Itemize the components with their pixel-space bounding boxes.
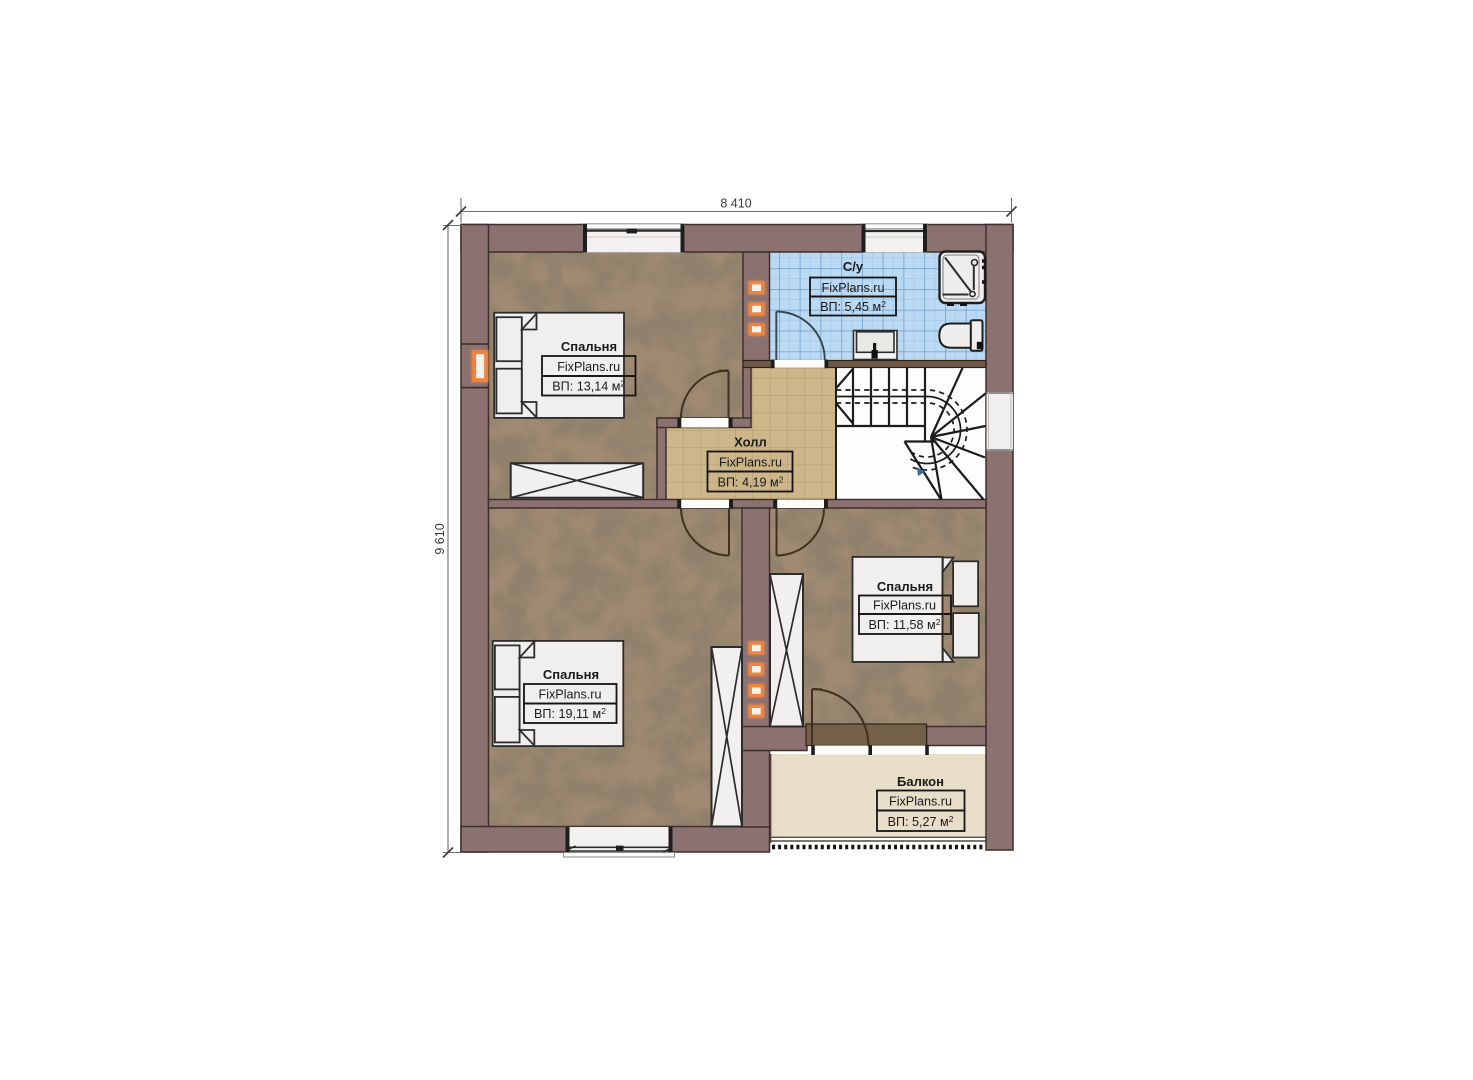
svg-text:ВП: 5,45 м2: ВП: 5,45 м2 <box>820 299 886 314</box>
svg-text:FixPlans.ru: FixPlans.ru <box>557 360 620 374</box>
svg-text:Балкон: Балкон <box>897 774 944 789</box>
svg-text:Холл: Холл <box>734 435 767 450</box>
svg-text:FixPlans.ru: FixPlans.ru <box>822 281 885 295</box>
svg-text:FixPlans.ru: FixPlans.ru <box>539 688 602 702</box>
svg-text:9 610: 9 610 <box>433 523 447 554</box>
svg-text:ВП: 19,11 м2: ВП: 19,11 м2 <box>534 706 606 721</box>
svg-text:8 410: 8 410 <box>720 197 751 211</box>
svg-text:Спальня: Спальня <box>561 339 617 354</box>
svg-text:FixPlans.ru: FixPlans.ru <box>873 599 936 613</box>
svg-text:ВП: 11,58 м2: ВП: 11,58 м2 <box>869 617 941 632</box>
svg-text:Спальня: Спальня <box>543 667 599 682</box>
svg-text:ВП: 13,14 м2: ВП: 13,14 м2 <box>552 379 625 394</box>
svg-text:FixPlans.ru: FixPlans.ru <box>889 795 952 809</box>
svg-text:ВП: 5,27 м2: ВП: 5,27 м2 <box>888 814 954 829</box>
svg-text:ВП: 4,19 м2: ВП: 4,19 м2 <box>718 475 784 490</box>
svg-text:FixPlans.ru: FixPlans.ru <box>719 456 782 470</box>
svg-text:Спальня: Спальня <box>877 579 933 594</box>
svg-text:С/у: С/у <box>843 259 864 274</box>
